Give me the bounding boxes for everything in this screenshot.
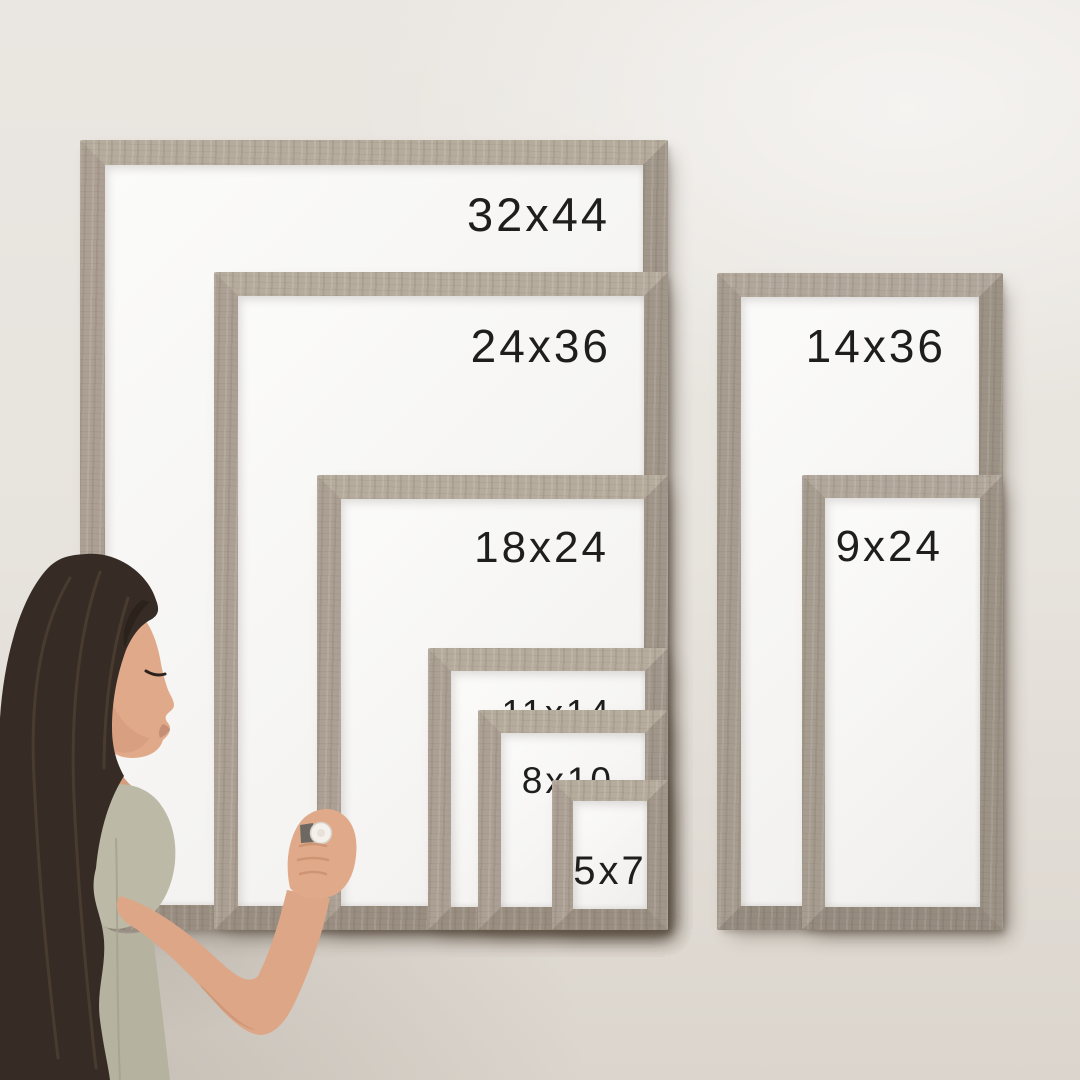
product-photo-scene: 32x44 24x36 18x24 11x14 8x10 5x7 14x36 9… <box>0 0 1080 1080</box>
size-label-9x24: 9x24 <box>836 525 943 569</box>
size-label-24x36: 24x36 <box>471 323 611 369</box>
size-label-18x24: 18x24 <box>474 526 609 570</box>
woman-figure <box>0 538 372 1080</box>
frame-5x7: 5x7 <box>552 780 668 930</box>
size-label-5x7: 5x7 <box>573 851 647 891</box>
marker-pen-cap-center <box>317 829 325 837</box>
frame-9x24: 9x24 <box>802 475 1003 930</box>
size-label-14x36: 14x36 <box>806 323 946 369</box>
size-label-32x44: 32x44 <box>467 191 610 238</box>
